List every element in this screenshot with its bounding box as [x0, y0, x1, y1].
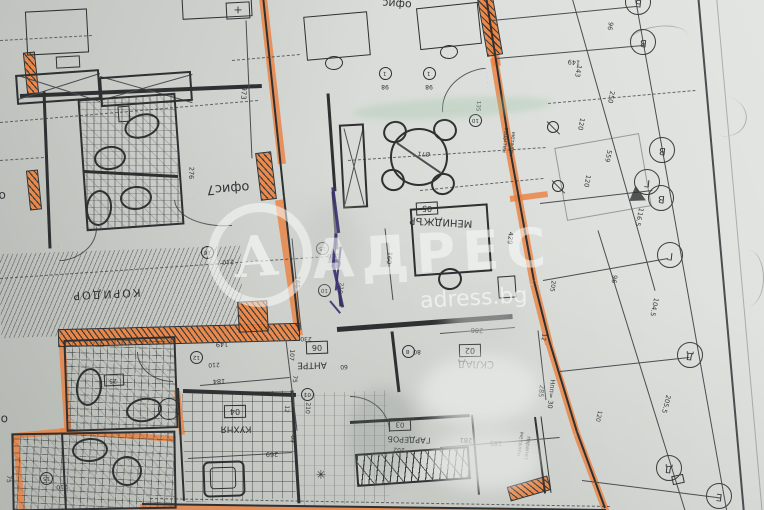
room-label: офис	[0, 190, 6, 204]
room-label: МЕНИДЖЪР	[409, 214, 472, 227]
dimension-text: 120	[594, 410, 602, 422]
plan-rect-outline	[25, 8, 89, 55]
plan-rect-outline	[416, 2, 482, 50]
dimension-line	[560, 357, 689, 372]
grid-axis-letter: Г	[643, 176, 650, 188]
room-label: офис	[382, 0, 412, 11]
dimension-text: 184	[213, 378, 226, 385]
grid-axis-bubble: Е	[706, 483, 732, 509]
dimension-text: 80	[413, 348, 421, 354]
room-label: КУХНЯ	[220, 424, 251, 433]
axis-dash-line	[548, 90, 695, 104]
grid-axis-letter: Д	[665, 462, 674, 474]
pencil-stroke	[696, 91, 752, 142]
grid-axis-bubble: В	[649, 137, 675, 163]
dimension-text: 210	[304, 402, 311, 414]
room-label: офис7	[206, 180, 250, 196]
dimension-text: 210	[56, 483, 68, 489]
dimension-text: 60	[340, 363, 348, 369]
dimension-text: 205	[548, 280, 555, 292]
smudge-mark	[445, 298, 525, 338]
dimension-line	[385, 228, 394, 300]
dimension-text: 107	[288, 349, 295, 361]
smudge-mark	[348, 388, 418, 483]
dimension-text: 205.5	[661, 394, 672, 414]
dimension-text: 276	[188, 167, 195, 180]
item-tag-number: 01	[303, 391, 310, 397]
dimension-text: 250	[607, 90, 616, 103]
dimension-text: 104.5	[649, 297, 659, 317]
window-axis-mark	[552, 180, 564, 192]
room-label: 06	[312, 343, 322, 351]
dimension-text: 12	[540, 333, 547, 341]
dimension-line	[492, 6, 636, 21]
dimension-text: 269	[266, 451, 279, 458]
room-label: Hпп= 30	[546, 379, 556, 409]
axis-dash-line	[0, 157, 44, 161]
dimension-text: 429	[506, 231, 514, 244]
plan-rect-outline	[339, 123, 368, 208]
room-label: 04	[230, 407, 240, 415]
dimension-text: 75	[5, 475, 12, 483]
room-label: 25	[109, 377, 117, 383]
grid-axis-letter: В	[658, 144, 666, 156]
plan-rect-outline	[15, 69, 101, 105]
hatched-wall	[255, 151, 277, 201]
room-label: 05	[422, 204, 433, 213]
dimension-text: 559	[604, 149, 613, 162]
dimension-text: 210	[208, 361, 220, 367]
dimension-text: 160	[385, 252, 393, 265]
fixture-ellipse	[324, 55, 343, 71]
item-tag-circle: 16	[201, 246, 214, 259]
dimension-text: 973	[239, 86, 247, 100]
plan-rect-outline	[303, 11, 371, 60]
dimension-text: 230	[300, 335, 311, 341]
grid-axis-letter: Е	[715, 490, 722, 502]
item-tag-circle: 01	[301, 388, 314, 401]
grid-axis-letter: Г	[666, 249, 673, 261]
hatched-wall	[237, 300, 269, 333]
pencil-stroke	[733, 250, 764, 306]
dimension-text: 120	[583, 174, 592, 187]
grid-axis-bubble: В	[648, 185, 674, 211]
dimension-line	[697, 0, 744, 510]
item-tag-number: 16	[203, 249, 210, 255]
room-label: ✳	[316, 468, 326, 480]
hatched-wall	[26, 169, 42, 210]
wall-segment	[576, 432, 606, 509]
dimension-text: 120	[577, 117, 586, 130]
wall-segment	[508, 144, 535, 281]
grid-axis-bubble: Д	[677, 342, 703, 368]
plan-rect-outline	[99, 71, 193, 107]
grid-axis-bubble: Г	[657, 242, 683, 268]
smudge-mark	[352, 93, 553, 123]
dimension-text: 98	[425, 83, 433, 89]
plan-rect-outline	[497, 275, 516, 298]
fixture-ellipse	[158, 398, 180, 420]
wall-segment	[43, 91, 52, 248]
dimension-text: 116.5	[634, 207, 644, 227]
item-tag-number: 10	[471, 117, 478, 123]
dimension-text: 96	[606, 21, 614, 30]
grid-axis-letter: Д	[686, 349, 695, 361]
item-tag-number: 1	[427, 70, 431, 76]
room-label: метален	[507, 131, 515, 156]
dimension-text: 210	[222, 258, 234, 264]
wall-segment	[327, 93, 337, 191]
dimension-text: 149	[216, 341, 229, 348]
dimension-text: 75	[291, 375, 298, 383]
item-tag-number: 8	[406, 348, 410, 354]
grid-axis-letter: Б	[634, 0, 642, 8]
dimension-text: 165	[293, 276, 300, 289]
grid-axis-letter: В	[657, 192, 665, 204]
fixture-ellipse	[439, 44, 458, 60]
smudge-mark	[300, 200, 360, 290]
dimension-text: 12	[283, 405, 290, 413]
room-label: АНТРЕ	[297, 359, 327, 369]
dimension-text: 149	[567, 58, 580, 66]
dimension-text: 98	[381, 83, 389, 89]
room-label: офис	[0, 413, 8, 426]
room-label: +	[233, 5, 242, 16]
window-axis-mark	[547, 121, 559, 133]
floorplan-photo: А АДРЕС adress.bg офис7офисофисофисКОРИД…	[0, 0, 764, 510]
room-label: КОРИДОР	[71, 287, 141, 302]
grid-axis-bubble: Д	[656, 455, 682, 481]
fixture-ellipse	[112, 456, 142, 486]
item-tag-circle: 1	[379, 67, 392, 80]
room-label: Ø71	[418, 150, 431, 156]
wall-segment	[391, 331, 401, 392]
item-tag-number: 1	[383, 70, 387, 76]
smudge-mark	[430, 430, 540, 490]
dimension-text: 96	[610, 274, 618, 283]
item-tag-number: 12	[192, 354, 199, 360]
plan-rect-outline	[56, 55, 81, 68]
item-tag-circle: 1	[423, 67, 436, 80]
dimension-text: 69	[289, 435, 296, 443]
room-label: 02	[465, 346, 475, 354]
item-tag-circle: 12	[190, 351, 203, 364]
grid-axis-bubble: Б	[625, 0, 651, 15]
item-tag-number: 15	[42, 475, 49, 481]
item-tag-circle: 15	[40, 472, 53, 485]
